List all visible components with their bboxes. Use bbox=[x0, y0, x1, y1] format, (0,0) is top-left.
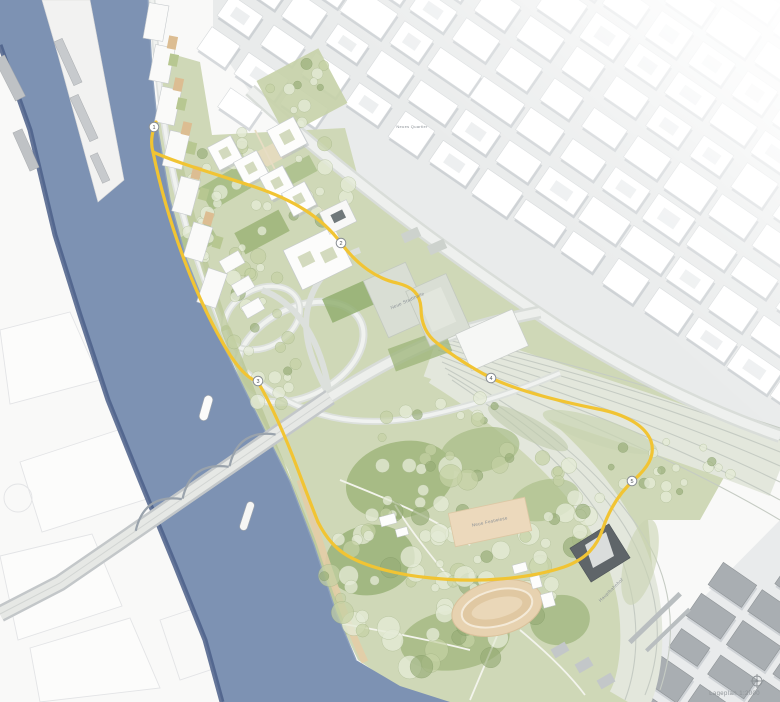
fade-overlay bbox=[0, 0, 780, 702]
lageplan-svg: 1 2 3 4 5 Neue Stadthalle Neue Festwiese… bbox=[0, 0, 780, 702]
legend-title: Lageplan bbox=[709, 691, 737, 697]
site-plan-map: 1 2 3 4 5 Neue Stadthalle Neue Festwiese… bbox=[0, 0, 780, 702]
legend-scale: 1:2000 bbox=[739, 691, 760, 697]
